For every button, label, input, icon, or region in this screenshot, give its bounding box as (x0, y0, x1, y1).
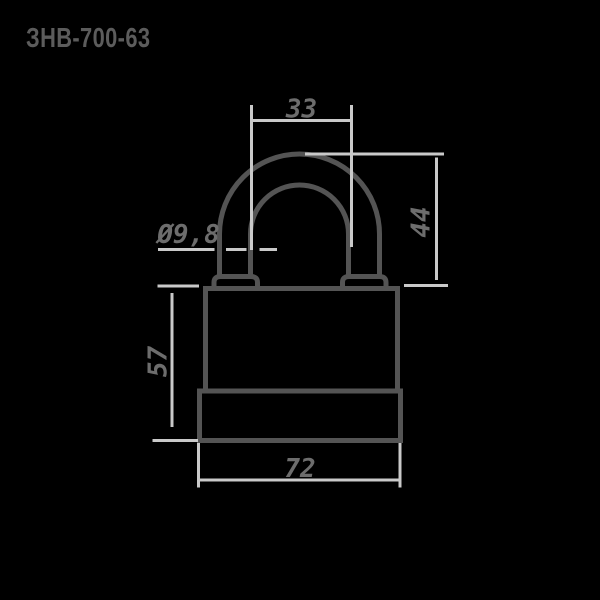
padlock-technical-drawing: 33 Ø9,8 44 57 72 (0, 0, 600, 600)
shackle-inner-contour (251, 185, 349, 277)
label-shackle-diameter: Ø9,8 (155, 220, 220, 250)
shackle-outer-contour (220, 154, 380, 277)
label-body-width: 72 (284, 454, 315, 484)
padlock-outline (200, 154, 401, 441)
dimension-lines (153, 105, 449, 488)
label-shackle-height: 44 (407, 206, 437, 237)
body-upper-contour (206, 289, 398, 392)
body-base-contour (200, 391, 401, 441)
drawing-canvas: ЗНВ-700-63 (0, 0, 600, 600)
label-body-height: 57 (144, 346, 174, 378)
label-shackle-inner-width: 33 (285, 95, 317, 125)
